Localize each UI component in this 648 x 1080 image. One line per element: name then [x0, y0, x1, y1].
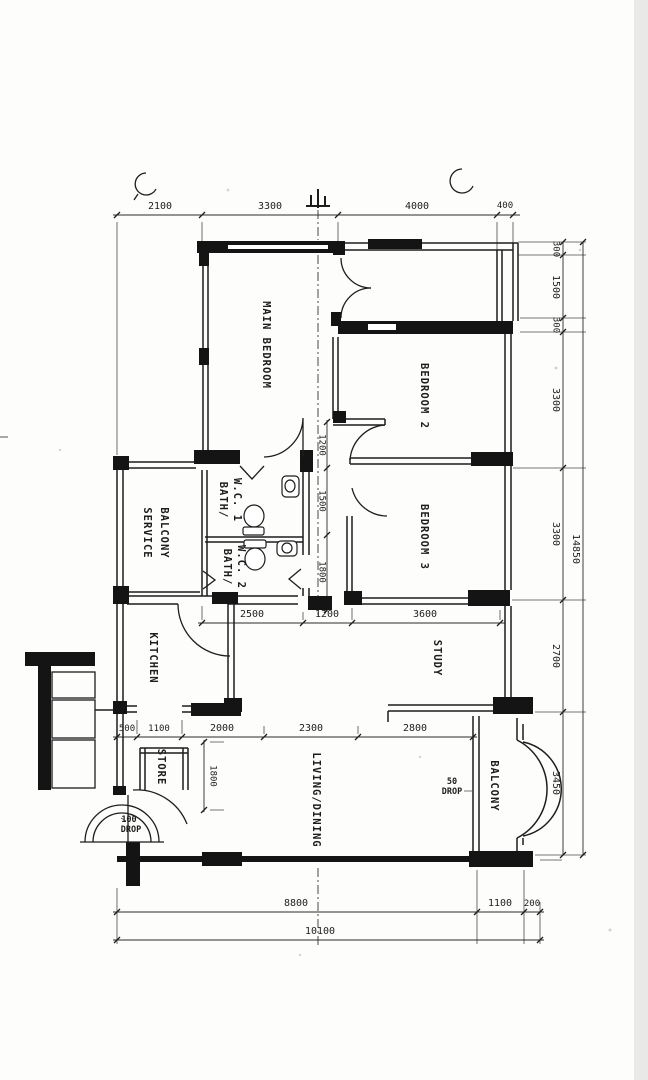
kitchen-door-arc — [178, 604, 230, 656]
dim-right-5: 2700 — [550, 644, 561, 668]
toilet-icon — [244, 505, 264, 527]
dim-top-3: 400 — [497, 201, 513, 211]
grid-bubble-icon — [135, 173, 156, 195]
dim-right-total: 14850 — [570, 534, 581, 564]
room-label-service-balcony-line2: BALCONY — [158, 507, 170, 558]
dim-right-0: 300 — [551, 241, 561, 257]
shower-corner-mark — [289, 569, 301, 589]
room-label-main-bedroom: MAIN BEDROOM — [260, 301, 272, 389]
dim-right-4: 3300 — [550, 522, 561, 546]
dim-right-1: 1500 — [550, 275, 561, 299]
room-label-store: STORE — [155, 749, 167, 786]
dim-mid-2: 3600 — [413, 609, 437, 620]
dim-top-2: 4000 — [405, 201, 429, 212]
bedroom2-door-arc — [350, 425, 385, 460]
balcony-drop-note-line2: DROP — [442, 787, 462, 797]
scan-noise — [59, 189, 612, 957]
room-label-study: STUDY — [431, 640, 443, 677]
room-label-bath2-line2: W.C. 2 — [235, 545, 247, 589]
entrance-drop-note-line2: DROP — [121, 825, 141, 835]
room-label-bedroom-3: BEDROOM 3 — [418, 504, 430, 570]
dim-top-1: 3300 — [258, 201, 282, 212]
floor-plan-scan: 2100 3300 4000 400 300 1500 300 3300 330… — [0, 0, 648, 1080]
room-label-living-dining: LIVING/DINING — [310, 752, 322, 847]
ac-ledge — [52, 672, 95, 788]
dim-right-2: 300 — [551, 317, 561, 333]
dim-mid-0: 2500 — [240, 609, 264, 620]
drop-note-pointer — [121, 791, 473, 821]
dim-bottom-2: 200 — [524, 899, 540, 909]
french-door-arc — [341, 288, 371, 318]
balcony-drop-note-line1: 50 — [447, 777, 457, 787]
main-bedroom-door-arc — [264, 418, 303, 457]
room-label-bath1-line1: BATH/ — [217, 482, 229, 519]
grid-bubble-tail — [134, 194, 138, 200]
dim-lower-1: 1100 — [148, 724, 170, 734]
floor-plan-drawing: 2100 3300 4000 400 300 1500 300 3300 330… — [0, 0, 648, 1080]
dim-bottom-1: 1100 — [488, 898, 512, 909]
dim-right-3: 3300 — [550, 388, 561, 412]
dim-store-depth: 1800 — [208, 765, 218, 787]
room-label-service-balcony-line1: SERVICE — [141, 507, 153, 558]
french-door-arc — [341, 258, 371, 288]
dim-corridor-0: 1200 — [317, 434, 327, 456]
dim-corridor-1: 1500 — [317, 490, 327, 512]
dim-bottom-0: 8800 — [284, 898, 308, 909]
dim-corridor-2: 1800 — [317, 561, 327, 583]
north-symbol-icon — [306, 189, 330, 208]
dim-lower-0: 500 — [119, 724, 135, 734]
dim-top-0: 2100 — [148, 201, 172, 212]
bedroom3-door-arc — [352, 488, 387, 516]
drop-notes: 100 DROP 50 DROP — [121, 777, 473, 835]
store-door-arc — [133, 790, 187, 824]
room-label-bath2-line1: BATH/ — [221, 549, 233, 586]
toilet-cistern-icon — [243, 527, 264, 535]
shower-corner-mark — [203, 571, 215, 589]
room-label-kitchen: KITCHEN — [147, 632, 159, 683]
washbasin-bowl-icon — [285, 480, 295, 492]
dim-bottom-total: 10100 — [305, 926, 335, 937]
room-label-bath1-line2: W.C. 1 — [231, 478, 243, 522]
room-label-bedroom-2: BEDROOM 2 — [418, 363, 430, 429]
dim-mid-1: 1200 — [315, 609, 339, 620]
dim-lower-2: 2000 — [210, 723, 234, 734]
grid-bubble-icon — [450, 169, 473, 193]
washbasin-bowl-icon — [282, 543, 292, 553]
room-label-balcony: BALCONY — [488, 760, 500, 811]
scan-edge — [634, 0, 648, 1080]
toilet-icon — [245, 548, 265, 570]
dim-lower-4: 2800 — [403, 723, 427, 734]
dim-lower-3: 2300 — [299, 723, 323, 734]
